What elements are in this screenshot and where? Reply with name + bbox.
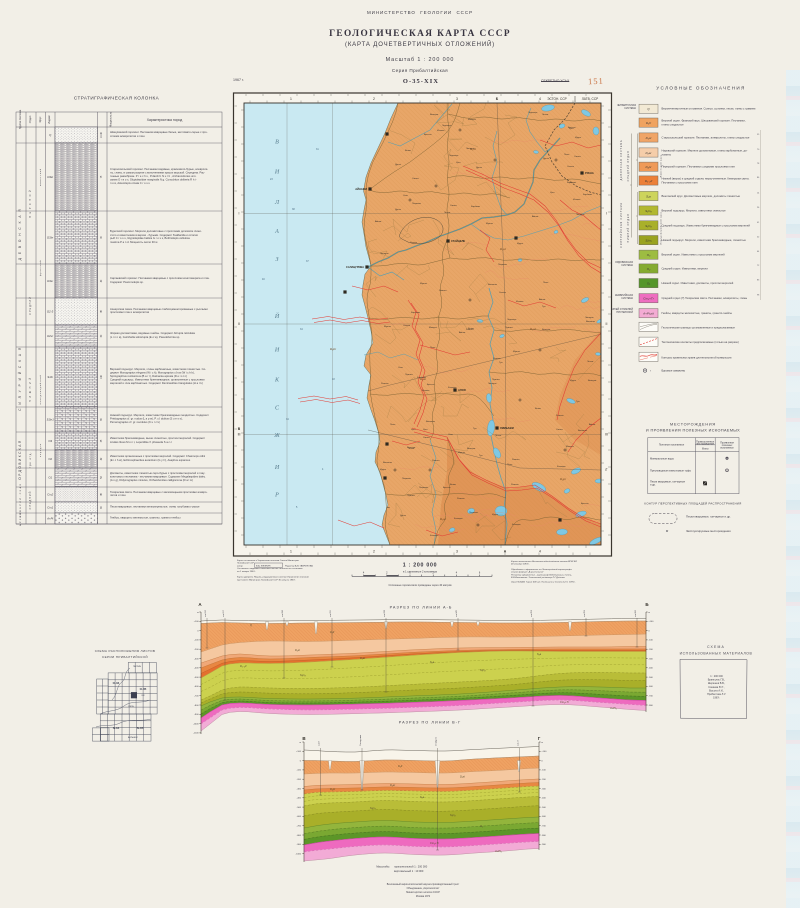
svg-text:maxima P a n d. Мощность окол: maxima P a n d. Мощность около 30 м — [110, 240, 158, 244]
svg-text:скв.17: скв.17 — [518, 739, 520, 746]
svg-text:и др.: и др. — [650, 484, 656, 487]
svg-text:Лиепупе: Лиепупе — [380, 253, 389, 255]
svg-text:Сканга: Сканга — [410, 242, 418, 244]
svg-text:Q: Q — [49, 133, 52, 137]
svg-text:Саргаевский горизонт. Песчаник: Саргаевский горизонт. Песчаники кварцевы… — [110, 276, 210, 280]
svg-text:Урга: Урга — [411, 429, 416, 431]
svg-text:S₁ln₃: S₁ln₃ — [370, 806, 376, 810]
svg-text:Карта отпечатана Всесоюзно-о: Карта отпечатана Всесоюзно-объединённым … — [511, 560, 577, 563]
svg-text:S₁ln₂: S₁ln₂ — [480, 668, 486, 672]
svg-text:Брасла: Брасла — [424, 134, 432, 136]
svg-text:+100: +100 — [296, 751, 302, 753]
svg-text:Леэни: Леэни — [542, 114, 549, 116]
svg-text:конитового песчаника - песчани: конитового песчаника - песчаники кварцев… — [110, 475, 206, 479]
svg-text:Г: Г — [538, 736, 541, 741]
svg-text:D₃fr: D₃fr — [330, 630, 335, 634]
svg-text:Объединение „Аэрогеология“: Объединение „Аэрогеология“ — [407, 887, 440, 890]
svg-text:Катвары: Катвары — [430, 535, 439, 537]
svg-text:Ж: Ж — [273, 433, 280, 439]
svg-text:II: II — [606, 322, 608, 326]
svg-text:Муяны: Муяны — [458, 452, 465, 454]
svg-text:4: 4 — [456, 572, 458, 575]
svg-text:-900: -900 — [541, 844, 546, 846]
svg-text:Пярнуский горизонт. Песчаники: Пярнуский горизонт. Песчаники с редкими … — [662, 165, 736, 169]
svg-text:O2: O2 — [48, 457, 52, 461]
svg-text:-600: -600 — [297, 816, 302, 818]
svg-text:АЙНАЖИ: АЙНАЖИ — [355, 187, 367, 191]
svg-text:автор: автор — [237, 565, 244, 567]
svg-text:вертикальный 1 : 10 000: вертикальный 1 : 10 000 — [394, 869, 424, 873]
svg-text:скв.238: скв.238 — [384, 609, 386, 617]
svg-text:60: 60 — [101, 506, 103, 509]
svg-text:Поциемс: Поциемс — [469, 512, 479, 514]
svg-text:(A n g), Didymograptus minut: (A n g), Didymograptus minutus, Orthambo… — [110, 478, 193, 482]
svg-text:S1ln: S1ln — [47, 375, 53, 379]
svg-text:-200: -200 — [297, 779, 302, 781]
svg-text:Пале: Пале — [564, 154, 570, 156]
svg-text:140: 140 — [101, 374, 103, 379]
svg-text:A+Pt: A+Pt — [46, 517, 53, 521]
svg-text:Контуры кровельных краев длит: Контуры кровельных краев длительнолитой … — [662, 355, 732, 359]
svg-text:-400: -400 — [541, 798, 546, 800]
svg-text:Ветки: Ветки — [405, 150, 412, 152]
svg-text:слоями алевролитов и глин: слоями алевролитов и глин — [110, 135, 145, 138]
svg-text:Ветки: Ветки — [450, 484, 457, 486]
svg-text:Геологические границы установл: Геологические границы установленные и пр… — [662, 325, 736, 329]
svg-text:Илзене: Илзене — [422, 390, 430, 392]
svg-text:Пале: Пале — [507, 464, 513, 466]
svg-text:I: I — [606, 212, 607, 216]
svg-text:Венлокский ярус. Доломитовые м: Венлокский ярус. Доломитовые мергели, до… — [662, 194, 741, 198]
svg-text:Розены: Розены — [457, 498, 465, 500]
svg-text:СРЕДНИЙ: СРЕДНИЙ — [29, 491, 32, 510]
svg-text:РАЗРЕЗ ПО ЛИНИИ В-Г: РАЗРЕЗ ПО ЛИНИИ В-Г — [399, 721, 461, 725]
svg-text:(L i n n a), Gurichella sobort: (L i n n a), Gurichella sobortupta (E o … — [110, 335, 180, 339]
svg-text:D₂pr: D₂pr — [560, 477, 567, 481]
svg-text:УСЛОВНЫЕ ОБОЗНАЧЕНИЯ: УСЛОВНЫЕ ОБОЗНАЧЕНИЯ — [656, 86, 745, 91]
svg-text:3: 3 — [456, 550, 458, 554]
svg-text:ископаемых: ископаемых — [720, 447, 734, 450]
svg-text:-800: -800 — [194, 705, 199, 707]
svg-text:-900: -900 — [194, 714, 199, 716]
svg-text:Нижний подъярус. Мергели, из: Нижний подъярус. Мергели, известняки бре… — [662, 238, 747, 242]
svg-text:Озолы: Озолы — [423, 437, 430, 439]
svg-text:Муяны: Муяны — [420, 283, 427, 285]
svg-text:Известняки брекчиевидные, выше: Известняки брекчиевидные, выше глинистые… — [110, 436, 206, 440]
svg-text:Поциемс: Поциемс — [412, 203, 422, 205]
svg-text:Дунте: Дунте — [395, 209, 402, 211]
svg-text:S₁ln₃: S₁ln₃ — [300, 673, 306, 677]
svg-text:Верхний отдел. Известняки с: Верхний отдел. Известняки с прослоями ме… — [662, 253, 726, 257]
svg-text:А: А — [198, 602, 202, 607]
svg-text:64: 64 — [757, 251, 760, 253]
svg-text:Дунте: Дунте — [543, 158, 550, 160]
svg-text:Виткули: Виткули — [430, 114, 439, 116]
svg-text:Карта одобрена Научно- редакци: Карта одобрена Научно- редакционным сове… — [237, 577, 310, 579]
svg-text:РУЕНА: РУЕНА — [585, 171, 594, 175]
svg-text:D3st: D3st — [47, 175, 53, 179]
svg-text:S₁ln₂: S₁ln₂ — [645, 224, 652, 228]
svg-text:скв.217: скв.217 — [223, 609, 225, 617]
svg-text:ПРОТЕРОЗОЙ: ПРОТЕРОЗОЙ — [616, 311, 633, 314]
svg-text:3: 3 — [456, 97, 458, 101]
svg-text:D₂pr: D₂pr — [646, 165, 653, 169]
svg-text:АРХЕЙ: АРХЕЙ — [19, 511, 22, 526]
svg-text:СЕРИИ ПРИБАЛТИЙСКОЙ: СЕРИИ ПРИБАЛТИЙСКОЙ — [102, 655, 148, 659]
svg-text:И: И — [274, 465, 280, 471]
svg-text:0: 0 — [197, 630, 199, 632]
svg-text:D₃st: D₃st — [500, 247, 506, 251]
svg-text:Пале: Пале — [390, 424, 396, 426]
svg-text:Пале: Пале — [543, 282, 549, 284]
svg-text:0: 0 — [300, 760, 302, 762]
svg-text:Песчаники с прослоями глин: Песчаники с прослоями глин — [662, 180, 699, 184]
svg-text:-600: -600 — [648, 686, 653, 688]
svg-text:Урга: Урга — [569, 128, 574, 130]
svg-text:Старооскольский горизонт. Песч: Старооскольский горизонт. Песчаники, але… — [662, 135, 750, 139]
svg-text:O₁: O₁ — [647, 282, 650, 286]
svg-text:26: 26 — [757, 207, 760, 209]
svg-text:Межулс: Межулс — [566, 446, 575, 448]
svg-text:Рамата: Рамата — [466, 329, 474, 331]
svg-text:ты, глины, в самом разрезе с в: ты, глины, в самом разрезе с включениями… — [110, 171, 205, 175]
svg-text:Кирбижи: Кирбижи — [583, 194, 593, 196]
svg-text:Cm₂+Тr: Cm₂+Тr — [430, 841, 439, 845]
svg-text:1 : 200 000: 1 : 200 000 — [403, 563, 438, 569]
svg-text:Р: Р — [274, 492, 279, 498]
svg-text:Д Е В О Н С К А Я: Д Е В О Н С К А Я — [18, 208, 22, 260]
svg-text:рыб C r o s s, Glyptolepidae: рыб C r o s s, Glyptolepidae baltica G r… — [110, 236, 190, 240]
svg-text:Озолы: Озолы — [574, 156, 581, 158]
svg-text:+100: +100 — [541, 751, 547, 753]
svg-text:И ПРОЯВЛЕНИЯ ПОЛЕЗНЫХ ИСКОПАЕМ: И ПРОЯВЛЕНИЯ ПОЛЕЗНЫХ ИСКОПАЕМЫХ — [646, 429, 740, 433]
svg-text:Илзене: Илзене — [573, 199, 581, 201]
svg-text:I: I — [239, 212, 240, 216]
svg-text:месторождения: месторождения — [696, 442, 714, 445]
svg-text:D₂pr: D₂pr — [330, 787, 335, 791]
svg-text:S₁ln₃: S₁ln₃ — [645, 209, 652, 213]
svg-text:75: 75 — [101, 175, 103, 178]
svg-text:S1ln1: S1ln1 — [47, 418, 55, 422]
svg-text:Аэнергская пачка. Песчаники кв: Аэнергская пачка. Песчаники кварцевые сл… — [110, 307, 208, 311]
svg-text:Верхний подъярус. Мергели, и: Верхний подъярус. Мергели, известняки гл… — [662, 208, 727, 212]
svg-text:N-34: N-34 — [113, 726, 120, 730]
svg-text:Кирбижи: Кирбижи — [567, 182, 577, 184]
svg-text:-900: -900 — [297, 844, 302, 846]
svg-text:Айнчи: Айнчи — [589, 423, 596, 426]
svg-text:Сканга: Сканга — [567, 166, 575, 168]
svg-text:Заказ №2244. Тираж 300 экз. П: Заказ №2244. Тираж 300 экз. Подписано к … — [511, 580, 576, 583]
svg-text:Тектонические контакты предпол: Тектонические контакты предполагаемые (т… — [662, 340, 739, 344]
svg-text:Озолы: Озолы — [556, 429, 563, 431]
svg-text:Пале: Пале — [430, 347, 436, 349]
svg-text:Ладэзерс: Ладэзерс — [449, 155, 459, 157]
svg-text:52: 52 — [757, 237, 760, 239]
svg-text:АЛОЯ: АЛОЯ — [458, 388, 466, 392]
svg-text:м: м — [197, 612, 199, 614]
svg-text:83: 83 — [757, 280, 760, 282]
svg-text:Латвийской ССР: Латвийской ССР — [237, 562, 254, 565]
svg-text:D₃fr: D₃fr — [398, 764, 403, 768]
svg-text:Пески кварцевые, песчаники мел: Пески кварцевые, песчаники мелкозернисты… — [110, 505, 200, 509]
svg-text:O1: O1 — [48, 476, 52, 480]
svg-text:-100: -100 — [297, 770, 302, 772]
svg-text:РАЗРЕЗ ПО ЛИНИИ А-Б: РАЗРЕЗ ПО ЛИНИИ А-Б — [390, 606, 453, 610]
svg-text:-800: -800 — [297, 835, 302, 837]
svg-text:Дунте: Дунте — [395, 164, 402, 166]
svg-text:-700: -700 — [194, 696, 199, 698]
svg-text:D₃st: D₃st — [470, 147, 476, 151]
svg-text:+100: +100 — [194, 621, 200, 623]
svg-text:Составлен к изданию в печатных: Составлен к изданию в печатных листах со… — [237, 568, 303, 570]
svg-text:Средний отдел (?).Тискреская с: Средний отдел (?).Тискреская свита. Песч… — [662, 296, 748, 300]
svg-text:-100: -100 — [194, 640, 199, 642]
svg-text:Ветки: Ветки — [535, 408, 542, 410]
svg-text:скв.252: скв.252 — [531, 609, 533, 617]
svg-text:60: 60 — [101, 334, 103, 337]
svg-text:З: З — [276, 257, 279, 263]
svg-text:Средний подъярус. Известняки б: Средний подъярус. Известняки брекчиевидн… — [110, 378, 205, 382]
svg-text:Q: Q — [250, 623, 252, 627]
svg-text:Кирбижи: Кирбижи — [471, 206, 481, 208]
svg-text:Нижний отдел. Известняки, дол: Нижний отдел. Известняки, доломиты, прос… — [662, 281, 734, 285]
svg-text:при Совете Министров Латвийско: при Совете Министров Латвийской ССР 30 а… — [237, 578, 296, 581]
svg-text:Муяны: Муяны — [513, 351, 520, 353]
svg-text:D₂ar: D₂ar — [360, 656, 365, 660]
svg-text:Й: Й — [274, 312, 280, 320]
svg-text:XIX: XIX — [141, 695, 145, 697]
svg-text:СИЛУРИЙСКАЯ СИСТЕМА: СИЛУРИЙСКАЯ СИСТЕМА — [620, 202, 623, 248]
svg-text:ческой фабрике „Аэрогеология“: ческой фабрике „Аэрогеология“ — [511, 571, 544, 574]
svg-text:D₂ar: D₂ar — [646, 151, 653, 155]
svg-text:D3sr: D3sr — [47, 279, 54, 283]
svg-text:-600: -600 — [194, 686, 199, 688]
svg-text:D₂st: D₂st — [295, 648, 300, 652]
svg-text:В: В — [302, 736, 306, 741]
svg-text:Минеральные воды: Минеральные воды — [650, 457, 674, 461]
svg-text:СРЕДНИЙ ОТДЕЛ: СРЕДНИЙ ОТДЕЛ — [627, 151, 630, 182]
svg-text:Средний отдел. Известняки, ме: Средний отдел. Известняки, мергели — [662, 266, 709, 270]
svg-text:г: г — [650, 370, 651, 373]
svg-text:Розены: Розены — [493, 358, 501, 360]
svg-text:Брасла: Брасла — [581, 503, 589, 505]
svg-text:Наровский горизонт. Мергели до: Наровский горизонт. Мергели доломитовые,… — [662, 149, 748, 153]
svg-text:скв.210: скв.210 — [205, 609, 207, 617]
svg-text:Озолы: Озолы — [450, 205, 457, 207]
svg-text:78: 78 — [757, 163, 760, 165]
svg-text:Окте: Окте — [403, 195, 409, 197]
svg-text:скв.259: скв.259 — [584, 609, 586, 617]
svg-text:Идусь: Идусь — [492, 514, 499, 516]
svg-text:Озолы: Озолы — [412, 178, 419, 180]
svg-text:-600: -600 — [541, 816, 546, 818]
svg-text:Характеристика пород: Характеристика пород — [147, 118, 183, 122]
svg-text:О-34: О-34 — [113, 681, 120, 685]
svg-text:горизонтальный 1 : 200 000: горизонтальный 1 : 200 000 — [394, 865, 428, 869]
svg-text:КОНТУР ПЕРСПЕКТИВНЫХ ПЛОЩАДЕЙ: КОНТУР ПЕРСПЕКТИВНЫХ ПЛОЩАДЕЙ РАСПРОСТРА… — [644, 502, 741, 506]
svg-text:Отдел: Отдел — [28, 115, 32, 123]
svg-text:Б: Б — [645, 602, 649, 607]
svg-text:Ладэзерс: Ладэзерс — [507, 319, 517, 321]
svg-text:Н И Ж Н И Й: Н И Ж Н И Й — [29, 377, 32, 402]
svg-text:С И Л У Р И Й С К А Я: С И Л У Р И Й С К А Я — [18, 346, 22, 410]
svg-text:Жилы: Жилы — [702, 448, 709, 451]
svg-text:Ладэзерс: Ладэзерс — [528, 112, 538, 114]
svg-text:Леэни: Леэни — [408, 448, 415, 450]
svg-text:Межулс: Межулс — [468, 119, 477, 121]
svg-text:Вилзены: Вилзены — [383, 462, 392, 464]
svg-text:Дунте: Дунте — [476, 167, 483, 169]
svg-text:Розены: Розены — [511, 484, 519, 486]
svg-text:Пузены: Пузены — [492, 379, 500, 381]
svg-text:Жяркая доломитовая, видимые гн: Жяркая доломитовая, видимые гнейсы. Соде… — [110, 331, 195, 335]
svg-text:35: 35 — [101, 439, 103, 442]
svg-text:Катвары: Катвары — [448, 387, 457, 389]
svg-text:Гнейсы, кварциты железистые, г: Гнейсы, кварциты железистые, граниты, гр… — [110, 516, 180, 520]
svg-text:4: 4 — [363, 572, 365, 575]
svg-text:литов и глин: литов и глин — [110, 494, 126, 497]
svg-text:м: м — [666, 529, 669, 533]
svg-text:4: 4 — [539, 550, 541, 554]
svg-text:Мощность м: Мощность м — [108, 112, 112, 127]
svg-text:Леэни: Леэни — [587, 361, 594, 363]
svg-text:СИСТЕМА: СИСТЕМА — [621, 264, 633, 267]
svg-text:Доломиты, известняки глинистые: Доломиты, известняки глинистые серо-буры… — [110, 471, 205, 475]
svg-text:ОРДОВИКСКАЯ: ОРДОВИКСКАЯ — [18, 439, 22, 479]
svg-text:-300: -300 — [541, 788, 546, 790]
svg-text:-1000: -1000 — [295, 853, 301, 855]
svg-text:скв.231: скв.231 — [330, 609, 332, 617]
svg-text:Тискреская свита. Песчаники кв: Тискреская свита. Песчаники кварцевые с … — [110, 490, 207, 494]
svg-text:-500: -500 — [541, 807, 546, 809]
svg-text:Вилзены: Вилзены — [426, 421, 435, 423]
svg-text:И: И — [274, 169, 280, 175]
svg-text:Илзене: Илзене — [516, 301, 524, 303]
svg-text:-200: -200 — [648, 649, 653, 651]
svg-text:Cm₂+Тr: Cm₂+Тr — [560, 700, 569, 704]
svg-text:п о в, Asterolepis ornata C r: п о в, Asterolepis ornata C r o s s — [110, 181, 150, 185]
svg-text:СИСТЕМА: СИСТЕМА — [624, 107, 636, 110]
svg-text:D₂st: D₂st — [460, 775, 465, 779]
svg-text:O₂: O₂ — [480, 824, 483, 828]
svg-text:держит Monograptus elegans (: держит Monograptus elegans (W i c h), Mo… — [110, 371, 195, 375]
svg-text:Идусь: Идусь — [380, 469, 387, 471]
svg-text:D₃br: D₃br — [330, 347, 337, 351]
svg-text:Айнчи: Айнчи — [539, 298, 546, 301]
svg-text:В: В — [275, 140, 279, 146]
svg-text:ЛАТВ. ССР: ЛАТВ. ССР — [582, 97, 599, 101]
svg-text:II: II — [238, 322, 240, 326]
svg-text:Пузены: Пузены — [407, 495, 415, 497]
svg-text:стого и известняков в верхах -: стого и известняков в верхах - бурыми. С… — [110, 233, 198, 237]
svg-text:О-35: О-35 — [140, 687, 147, 691]
svg-text:В Е Р Х Н И Й: В Е Р Х Н И Й — [29, 189, 32, 218]
svg-text:Содержит Psammolepis sp.: Содержит Psammolepis sp. — [110, 280, 144, 284]
svg-text:-100: -100 — [648, 640, 653, 642]
svg-text:лландоверийский: лландоверийский — [39, 375, 42, 405]
svg-text:D₃st: D₃st — [440, 517, 446, 521]
svg-text:80: 80 — [101, 418, 103, 421]
svg-text:Ладэзерс: Ладэзерс — [442, 125, 452, 127]
svg-text:скв.8: скв.8 — [319, 741, 321, 746]
svg-text:Окте: Окте — [448, 434, 454, 436]
svg-text:Лландоверийский ярус: Лландоверийский ярус — [660, 211, 663, 245]
svg-text:Межулс: Межулс — [429, 327, 438, 329]
svg-text:Группа Система: Группа Система — [18, 109, 22, 129]
svg-text:Салацгрива: Салацгрива — [360, 734, 362, 746]
svg-text:6: 6 — [479, 572, 481, 575]
svg-text:10-40: 10-40 — [101, 131, 103, 138]
svg-text:НИЖНИЙ ОТДЕЛ: НИЖНИЙ ОТДЕЛ — [627, 213, 630, 242]
svg-text:-400: -400 — [194, 668, 199, 670]
svg-text:Нижний подъярус. Мергели, изве: Нижний подъярус. Мергели, известняки бре… — [110, 413, 209, 417]
svg-text:Дунте: Дунте — [400, 515, 407, 517]
svg-text:ЭСТОН. ССР: ЭСТОН. ССР — [547, 97, 567, 101]
svg-text:-1000: -1000 — [193, 723, 199, 725]
svg-text:III: III — [238, 433, 241, 437]
svg-text:Пузены: Пузены — [405, 374, 413, 376]
svg-text:СРЕДНИЙ: СРЕДНИЙ — [29, 296, 32, 315]
svg-text:ДЕВОНСКАЯ СИСТЕМА: ДЕВОНСКАЯ СИСТЕМА — [620, 140, 623, 181]
svg-text:Нижний (верхи) и средний отдел: Нижний (верхи) и средний отделы нерасчле… — [662, 177, 750, 181]
svg-text:Редактор А.В. ГАВРИЛОВА: Редактор А.В. ГАВРИЛОВА — [285, 564, 313, 567]
svg-text:Живетский ярус: Живетский ярус — [660, 154, 663, 178]
svg-text:Розены: Розены — [381, 383, 389, 385]
svg-text:D₂ar: D₂ar — [390, 783, 395, 787]
svg-text:-300: -300 — [648, 658, 653, 660]
svg-text:Идусь: Идусь — [517, 243, 524, 245]
svg-text:Катвары: Катвары — [454, 518, 463, 520]
svg-text:55: 55 — [757, 134, 760, 136]
svg-text:Cm2: Cm2 — [47, 493, 53, 497]
svg-text:скв.245: скв.245 — [456, 609, 458, 617]
svg-text:Министерство геологии СССР: Министерство геологии СССР — [406, 891, 440, 894]
svg-text:Полезные ископаемые: Полезные ископаемые — [659, 444, 685, 447]
svg-text:м: м — [648, 612, 650, 614]
svg-text:ломиты: ломиты — [662, 153, 672, 156]
svg-text:-400: -400 — [297, 798, 302, 800]
svg-text:D2vr: D2vr — [47, 334, 54, 338]
svg-text:Идусь: Идусь — [570, 380, 577, 382]
svg-text:живетский: живетский — [39, 168, 42, 186]
svg-text:тенные ракообразн. P r e c h s: тенные ракообразн. P r e c h s , P.danil… — [110, 174, 196, 178]
svg-text:глины слюдистые: глины слюдистые — [662, 123, 685, 126]
svg-text:-200: -200 — [194, 649, 199, 651]
svg-text:Pernerograptus cf. gr. revol: Pernerograptus cf. gr. revolutus (K u r … — [110, 420, 160, 424]
svg-text:на 1 января 1967г.: на 1 января 1967г. — [237, 571, 256, 573]
svg-text:Стайцеле: Стайцеле — [435, 736, 438, 746]
svg-text:Леэни: Леэни — [495, 435, 502, 437]
svg-text:ТАЛЛИН: ТАЛЛИН — [133, 665, 142, 668]
svg-text:скими О г в о з, Glyptolepidae: скими О г в о з, Glyptolepidae marginali… — [110, 178, 197, 182]
svg-text:S₂в: S₂в — [430, 660, 435, 664]
svg-text:Рамата: Рамата — [439, 290, 447, 292]
svg-text:-100: -100 — [541, 770, 546, 772]
svg-text:Москва 1972: Москва 1972 — [416, 895, 431, 898]
svg-text:A+Pt₁: A+Pt₁ — [609, 706, 617, 710]
svg-text:30 декабря 1967г.: 30 декабря 1967г. — [511, 563, 530, 566]
svg-text:Обработка и оформление на: Обработка и оформление на Ленинградской … — [511, 568, 572, 571]
svg-text:1: 1 — [290, 550, 292, 554]
svg-text:-300: -300 — [194, 658, 199, 660]
svg-text:прослоями глин и алевролитов: прослоями глин и алевролитов — [110, 311, 150, 314]
svg-text:Cm₂+Тr: Cm₂+Тr — [643, 297, 654, 301]
svg-text:Виткули: Виткули — [467, 448, 476, 450]
svg-text:D₃st: D₃st — [530, 327, 536, 331]
svg-text:-800: -800 — [648, 705, 653, 707]
svg-text:Верхнечетвертичные отложения.: Верхнечетвертичные отложения. Супеси, су… — [662, 107, 756, 111]
svg-text:ЛИМБАЖИ: ЛИМБАЖИ — [500, 426, 514, 430]
